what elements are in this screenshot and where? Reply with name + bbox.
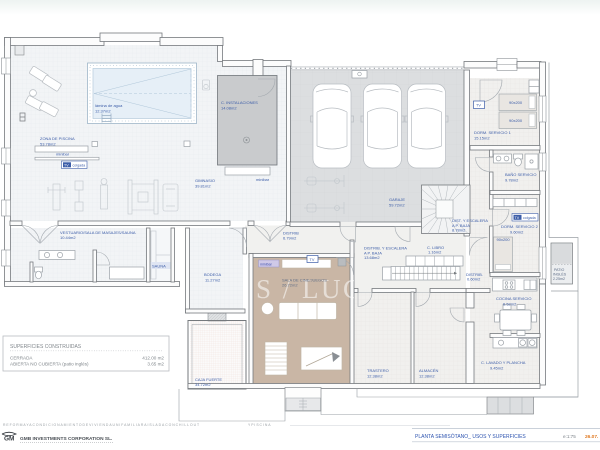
svg-text:minibar: minibar	[256, 177, 270, 182]
svg-text:REFORMAYACONDICIONAMIENTODEVIV: REFORMAYACONDICIONAMIENTODEVIVIENDAUNIFA…	[3, 423, 200, 427]
svg-text:GARAJE59.72m2: GARAJE59.72m2	[389, 197, 405, 207]
svg-text:TV: TV	[64, 163, 69, 167]
svg-text:TV: TV	[310, 258, 315, 262]
svg-text:e:1:75: e:1:75	[563, 434, 576, 439]
svg-text:colgada: colgada	[523, 216, 536, 220]
svg-text:TV: TV	[476, 104, 481, 108]
svg-text:BODEGA11.27m2: BODEGA11.27m2	[204, 272, 221, 282]
svg-text:CERRADA: CERRADA	[10, 356, 33, 361]
svg-text:minibar: minibar	[260, 262, 273, 266]
svg-text:90x200: 90x200	[509, 100, 523, 105]
svg-text:SAUNA: SAUNA	[152, 263, 166, 268]
svg-text:GM: GM	[4, 436, 14, 443]
svg-text:412.00 m2: 412.00 m2	[142, 356, 164, 361]
svg-text:TV: TV	[515, 216, 520, 220]
svg-text:90x200: 90x200	[497, 237, 511, 242]
svg-text:26.07.: 26.07.	[585, 434, 598, 440]
svg-text:SUPERFICIES CONSTRUIDAS: SUPERFICIES CONSTRUIDAS	[10, 344, 82, 350]
svg-text:PLANTA SEMISÓTANO_ USOS Y SUPE: PLANTA SEMISÓTANO_ USOS Y SUPERFICIES	[415, 433, 526, 440]
svg-text:minibar: minibar	[56, 152, 70, 157]
svg-text:colgada: colgada	[73, 164, 86, 168]
svg-text:YPISCINA: YPISCINA	[248, 423, 271, 427]
svg-text:GMB INVESTMENTS CORPORATION SL: GMB INVESTMENTS CORPORATION SL.	[20, 436, 112, 442]
svg-text:ABIERTA NO CUBIERTA (patio ing: ABIERTA NO CUBIERTA (patio inglés)	[10, 362, 89, 367]
svg-text:3.65 m2: 3.65 m2	[147, 362, 164, 367]
svg-text:90x200: 90x200	[509, 118, 523, 123]
